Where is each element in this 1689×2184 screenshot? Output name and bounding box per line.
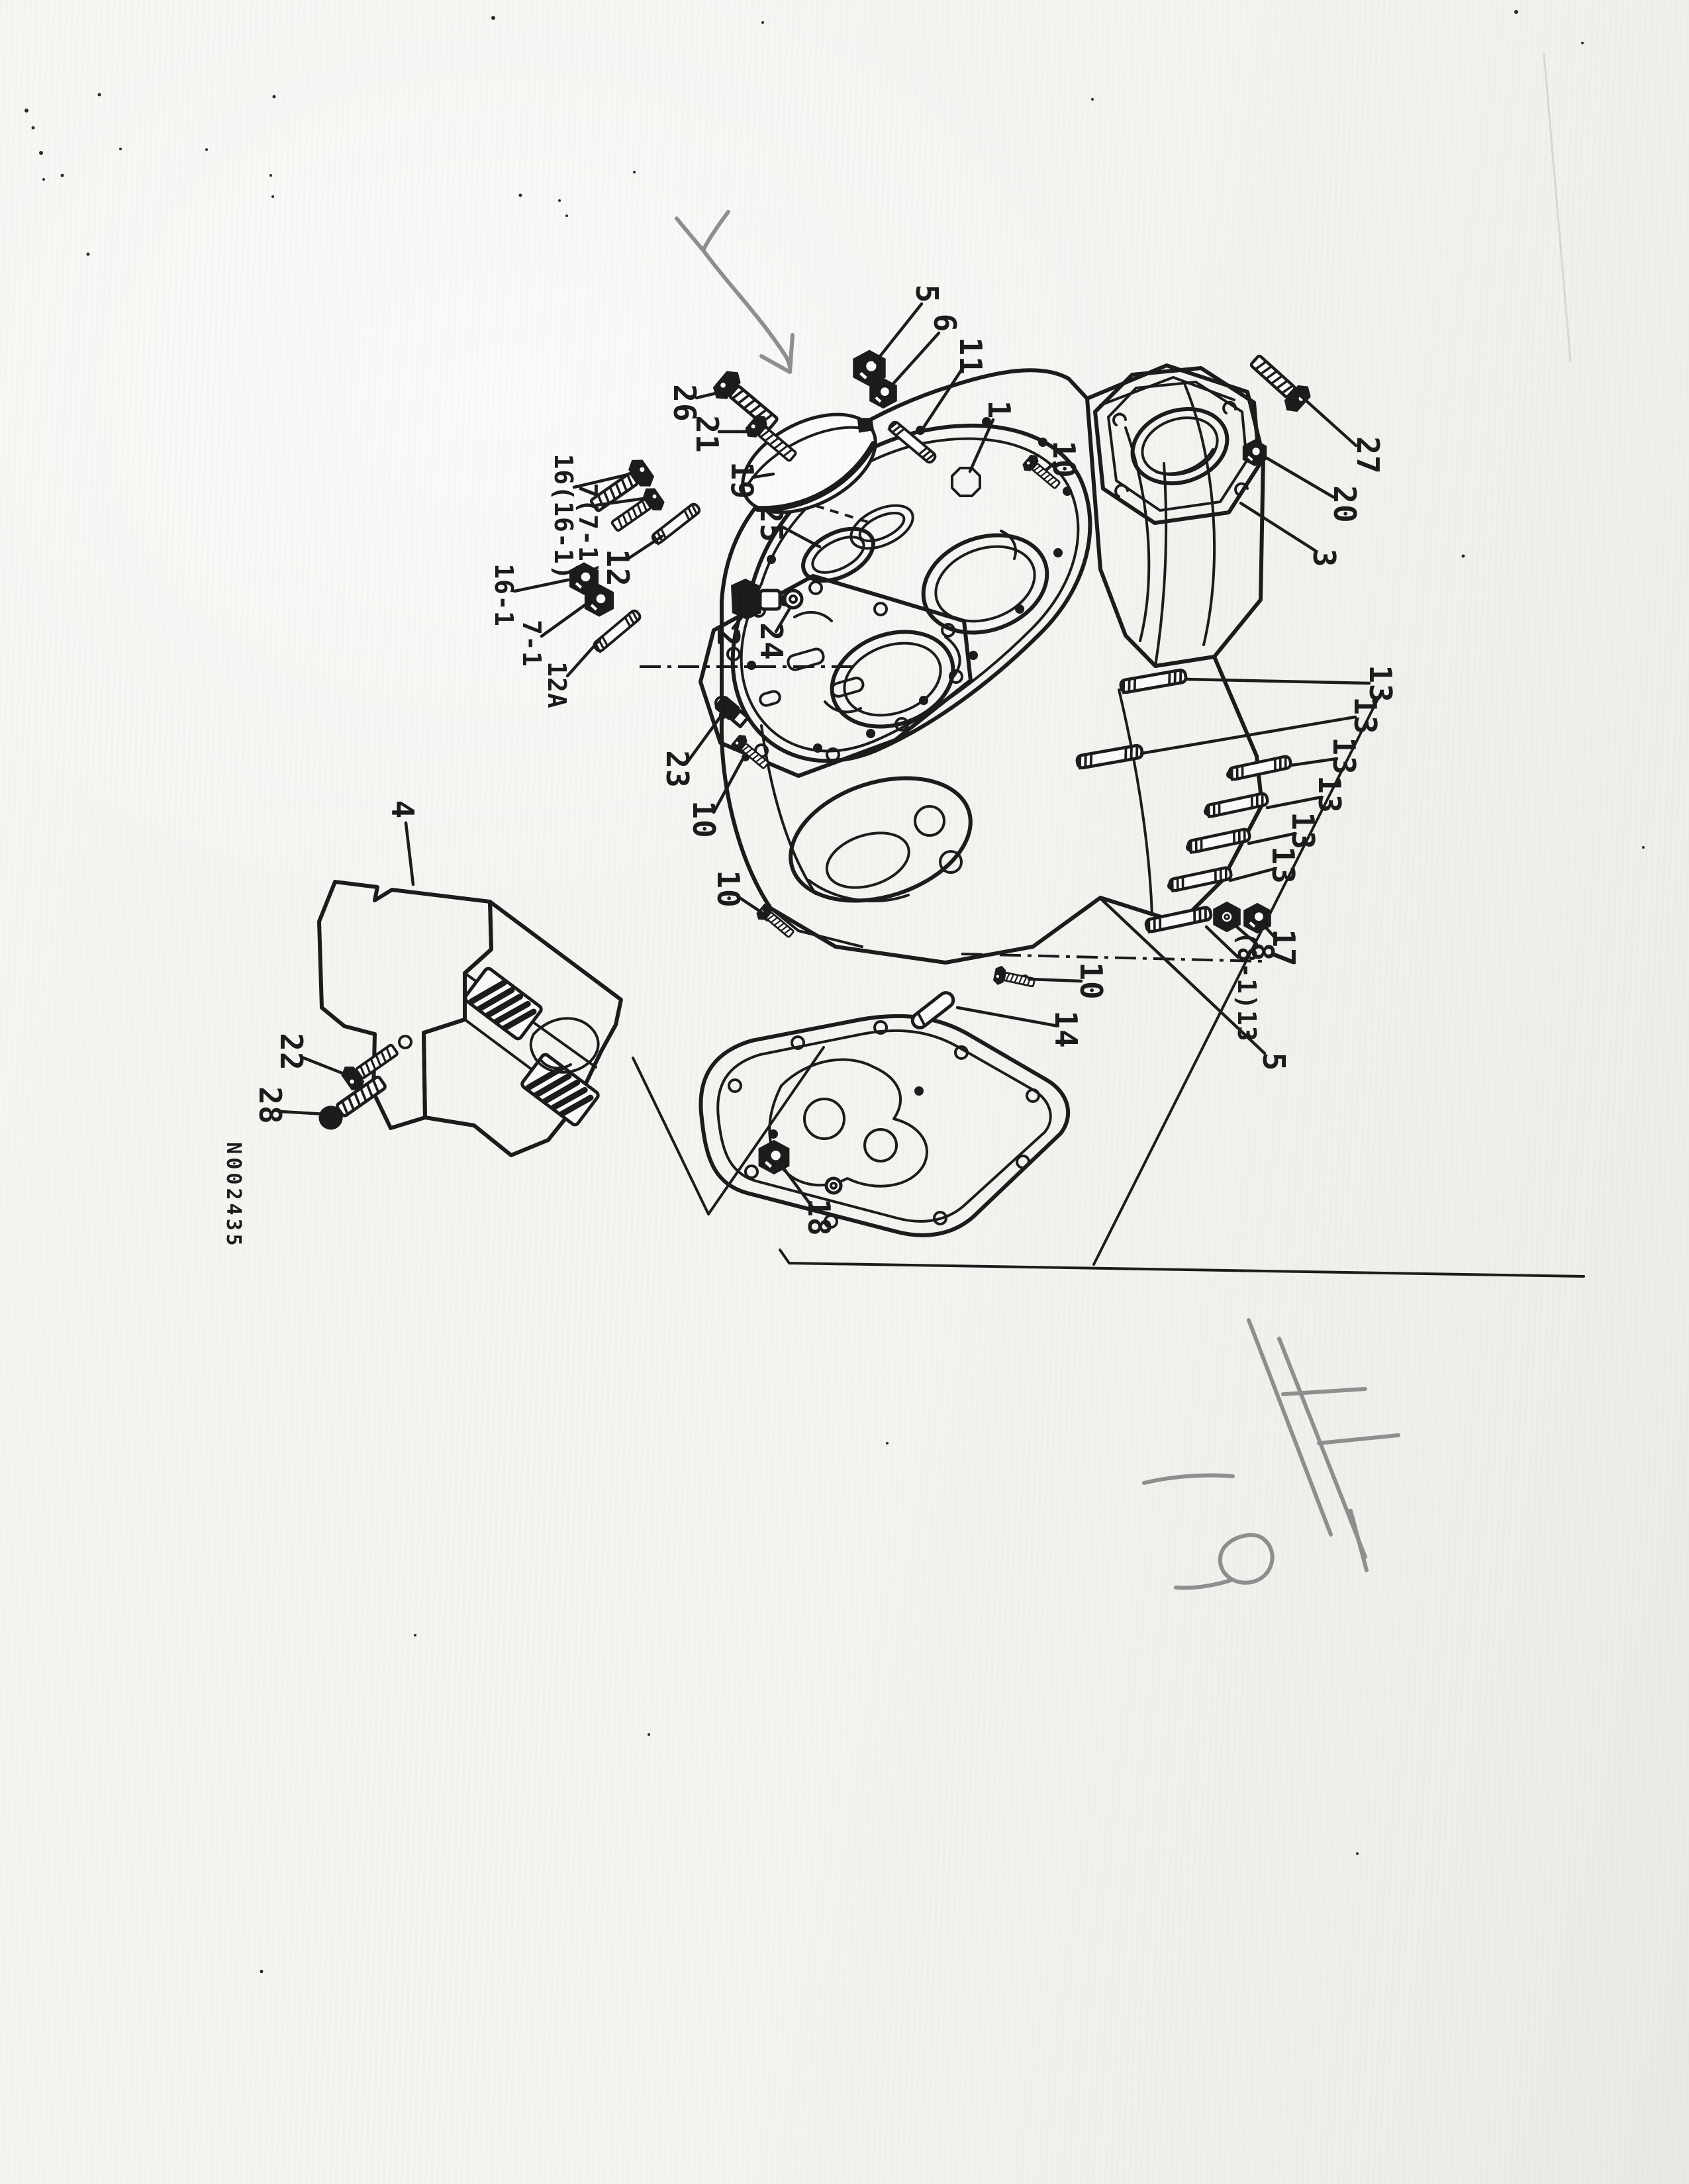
part-label-10-top: 10 [1049,440,1079,478]
part-label-10-bottom-right: 10 [1076,962,1106,1000]
part-label-4: 4 [387,800,418,820]
part-label-6-leader [891,333,939,386]
part-label-3-leader [1241,503,1316,551]
part-label-4-leader [406,823,413,884]
part-label-5-bottom: 5 [1259,1053,1289,1072]
part-label-21: 21 [692,415,722,453]
part-label-16: 16(16-1) [551,453,576,580]
part-label-7-1: 7-1 [519,620,544,667]
part-label-24: 24 [756,622,787,660]
part-label-5-top-leader [875,304,922,362]
part-label-5-top: 5 [912,285,942,304]
part-label-10-low: 10 [713,870,744,908]
part-label-16-1-leader [514,580,568,591]
part-label-22: 22 [276,1033,307,1070]
part-label-11-leader [922,366,964,430]
part-label-13-6: 13 [1268,846,1298,884]
part-label-6: 6 [930,314,960,333]
part-label-1-leader [970,420,993,471]
part-label-25: 25 [756,504,787,542]
part-label-13-3: 13 [1329,737,1359,775]
part-label-20-leader [1265,457,1333,497]
part-label-7-leader [597,498,649,505]
part-label-13-1-leader [1186,679,1369,683]
part-label-20: 20 [1329,485,1360,523]
part-label-12a-leader [567,640,600,676]
sheet-code: N002435 [223,1142,243,1249]
part-label-28: 28 [255,1086,285,1124]
part-label-13-2: 13 [1350,696,1380,734]
part-label-2-leader [733,612,746,628]
part-label-12a: 12A [544,661,569,709]
part-label-7: 7(7-1) [575,483,601,577]
part-label-18: 18 [804,1198,834,1236]
part-label-2: 2 [713,628,744,647]
part-label-16-1: 16-1 [491,563,516,627]
part-label-12: 12 [603,549,633,587]
part-label-14: 14 [1051,1010,1081,1048]
part-label-11: 11 [955,337,986,375]
part-label-7-1-leader [542,604,587,636]
part-label-8-1-13: (8-1)13 [1234,931,1259,1041]
part-label-13-2-leader [1141,717,1355,753]
part-label-14-leader [957,1008,1055,1025]
part-label-13-4: 13 [1314,775,1345,813]
part-label-27: 27 [1353,436,1383,474]
part-label-27-leader [1296,392,1356,446]
part-label-3: 3 [1309,549,1339,568]
part-label-19: 19 [727,461,757,499]
part-label-1: 1 [984,401,1014,420]
scanned-parts-diagram: 2621192556111102720316(16-1)7(7-1)1216-1… [0,0,1689,2184]
part-label-10-mid: 10 [689,800,719,838]
part-label-13-5: 13 [1288,812,1318,849]
part-label-23: 23 [662,750,693,788]
